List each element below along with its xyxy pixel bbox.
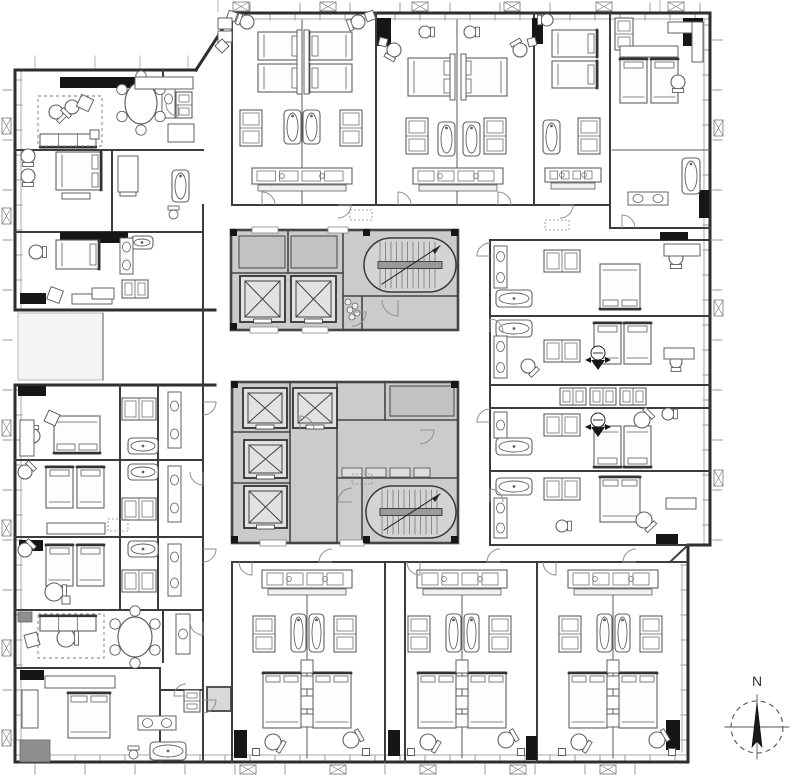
ottoman	[363, 749, 370, 756]
cabinet	[301, 676, 313, 689]
bed	[46, 544, 73, 586]
elevator	[244, 440, 287, 479]
ottoman	[559, 749, 566, 756]
closet	[484, 118, 506, 154]
cabinet	[620, 46, 678, 57]
cabinet	[456, 660, 468, 673]
bed	[46, 466, 73, 508]
bathtub	[543, 120, 560, 154]
bathtub	[463, 122, 480, 156]
cabinet	[664, 244, 700, 256]
cabinet	[607, 714, 619, 727]
vanity	[494, 498, 507, 538]
closet	[544, 250, 580, 272]
elevator	[244, 486, 287, 529]
closet	[240, 110, 262, 146]
bathtub	[291, 614, 306, 652]
bed	[418, 672, 456, 728]
cabinet	[301, 714, 313, 727]
closet	[590, 388, 616, 405]
cabinet	[456, 714, 468, 727]
floor-plan-canvas: N	[0, 0, 800, 782]
bed	[600, 476, 640, 522]
cabinet	[62, 193, 90, 199]
ottoman	[518, 749, 525, 756]
lounge-chair	[29, 245, 47, 259]
bathtub	[128, 438, 158, 454]
bed	[552, 30, 598, 57]
bathtub	[128, 541, 158, 557]
bed	[600, 264, 640, 310]
bathtub	[150, 742, 186, 760]
closet	[122, 398, 156, 420]
bathtub	[496, 478, 532, 495]
cabinet	[92, 288, 114, 299]
closet	[544, 414, 580, 436]
cabinet	[22, 690, 38, 728]
cabinet	[135, 77, 193, 89]
ottoman	[527, 37, 537, 47]
closet	[334, 616, 356, 652]
bathtub	[496, 290, 532, 307]
bed	[77, 544, 104, 586]
vanity-counter	[413, 168, 503, 191]
bathtub	[464, 614, 479, 652]
bathtub	[128, 464, 158, 480]
vanity-counter	[417, 570, 507, 595]
cabinet	[607, 676, 619, 689]
lounge-chair	[419, 26, 435, 38]
vanity-counter	[545, 168, 601, 189]
bed	[620, 58, 647, 103]
vanity	[168, 392, 181, 448]
ottoman	[408, 749, 415, 756]
north-label: N	[752, 673, 762, 689]
closet	[544, 340, 580, 362]
cabinet	[456, 696, 468, 709]
cabinet	[301, 660, 313, 673]
bed	[461, 58, 507, 96]
cabinet	[168, 124, 194, 142]
vanity	[628, 192, 668, 205]
closet	[340, 110, 362, 146]
bed	[258, 32, 302, 60]
bed	[56, 152, 102, 190]
lounge-chair	[464, 26, 480, 38]
closet	[406, 118, 428, 154]
bed	[77, 466, 104, 508]
bathtub	[172, 170, 189, 202]
elevator	[240, 276, 285, 323]
bathtub	[597, 614, 612, 652]
cabinet	[90, 130, 99, 139]
bathtub	[446, 614, 461, 652]
toilet	[128, 746, 139, 759]
bed	[56, 240, 100, 269]
cabinet	[692, 22, 703, 62]
stair	[366, 486, 456, 538]
closet	[578, 118, 600, 154]
vanity	[494, 336, 507, 378]
cabinet	[664, 348, 694, 359]
bathtub	[496, 320, 532, 337]
bathtub	[438, 122, 455, 156]
vanity	[494, 246, 507, 288]
bathtub	[682, 158, 700, 194]
ottoman	[62, 596, 70, 604]
vanity-counter	[568, 570, 658, 595]
closet	[408, 616, 430, 652]
cabinet	[301, 696, 313, 709]
vanity	[494, 412, 507, 438]
cabinet	[456, 676, 468, 689]
closet	[122, 498, 156, 520]
closet	[253, 616, 275, 652]
elevator	[291, 276, 336, 323]
closet	[620, 388, 646, 405]
bathtub	[496, 438, 532, 455]
closet	[615, 18, 633, 50]
cabinet	[20, 420, 34, 456]
bed	[624, 426, 651, 468]
cabinet	[450, 54, 455, 100]
bathtub	[131, 236, 153, 249]
bed	[619, 672, 657, 728]
bed	[624, 322, 651, 364]
vanity-counter	[262, 570, 352, 595]
lounge-chair	[671, 75, 685, 93]
bed	[313, 672, 351, 728]
lounge-chair	[21, 169, 35, 187]
bathtub	[309, 614, 324, 652]
lounge-chair	[662, 408, 678, 420]
vanity	[176, 614, 190, 654]
bed	[263, 672, 301, 728]
closet	[122, 280, 148, 298]
cabinet	[47, 523, 105, 534]
vanity	[120, 238, 133, 274]
vanity-counter	[252, 168, 352, 191]
elevator	[243, 388, 287, 429]
ottoman	[253, 749, 260, 756]
cabinet	[297, 30, 302, 94]
bed	[468, 672, 506, 728]
closet	[122, 570, 156, 592]
bed	[258, 64, 302, 92]
closet	[184, 690, 200, 712]
lounge-chair	[21, 149, 35, 167]
bed	[68, 692, 110, 738]
cabinet	[45, 676, 115, 688]
sofa	[40, 615, 96, 631]
cabinet	[666, 498, 696, 509]
lounge-chair	[57, 629, 79, 647]
cabinet	[218, 18, 232, 29]
bed	[552, 61, 598, 88]
bathtub	[615, 614, 630, 652]
vanity	[168, 466, 181, 522]
cabinet	[461, 54, 466, 100]
bed	[54, 416, 100, 454]
floor-plan-page: N	[0, 0, 800, 782]
lounge-chair	[556, 520, 572, 532]
ottoman	[669, 749, 676, 756]
stair	[364, 238, 456, 292]
closet	[544, 478, 580, 500]
floor-plan-svg: N	[0, 0, 800, 782]
cabinet	[304, 30, 309, 94]
ottoman	[378, 37, 388, 47]
closet	[560, 388, 586, 405]
bed	[569, 672, 607, 728]
bathtub	[303, 110, 320, 144]
toilet	[168, 206, 179, 219]
vanity	[138, 716, 176, 730]
closet	[640, 616, 662, 652]
bed	[308, 64, 352, 92]
bed	[308, 32, 352, 60]
closet	[489, 616, 511, 652]
cabinet	[607, 696, 619, 709]
vanity	[168, 544, 181, 596]
cabinet	[118, 156, 138, 192]
closet	[559, 616, 581, 652]
cabinet	[607, 660, 619, 673]
bathtub	[284, 110, 301, 144]
lounge-chair	[538, 14, 554, 26]
bed	[408, 58, 454, 96]
